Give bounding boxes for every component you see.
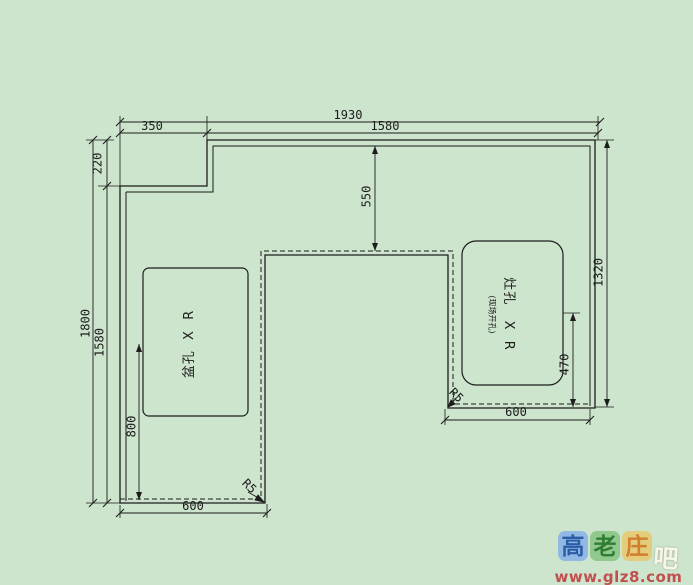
dimension-lines [93,122,607,513]
watermark-badges: 高 老 庄 吧 [546,531,691,567]
extension-lines [86,116,614,518]
dim-sink-center: 800 [126,412,139,442]
radius-leader-lines [248,393,461,502]
dim-top-right-segment: 1580 [361,120,409,133]
cad-drawing-canvas: 1930 350 1580 220 1800 1580 800 550 1320… [0,0,693,585]
dimension-ticks [89,118,604,517]
dim-band-depth: 550 [361,182,374,212]
watermark-badge-gao: 高 [558,531,588,561]
dim-right-leg-width: 600 [498,406,534,419]
countertop-outline-drawing [0,0,693,585]
dim-stove-center: 470 [559,350,572,380]
dim-top-left-segment: 350 [134,120,170,133]
dim-right-outer: 1320 [593,253,606,293]
watermark-badge-lao: 老 [590,531,620,561]
dim-left-outer: 1800 [80,304,93,344]
watermark-badge-zhuang: 庄 [622,531,652,561]
watermark: 高 老 庄 吧 www.glz8.com [546,531,691,585]
sink-cutout-label: 盆孔 X R [183,294,197,394]
dim-left-leg-width: 600 [175,500,211,513]
dim-left-inner: 1580 [94,323,107,363]
stove-cutout-note: (现场开孔) [488,292,497,338]
stove-cutout-label: 灶孔 X R [501,268,515,360]
dim-left-notch: 220 [92,149,105,179]
watermark-suffix: 吧 [652,538,679,576]
